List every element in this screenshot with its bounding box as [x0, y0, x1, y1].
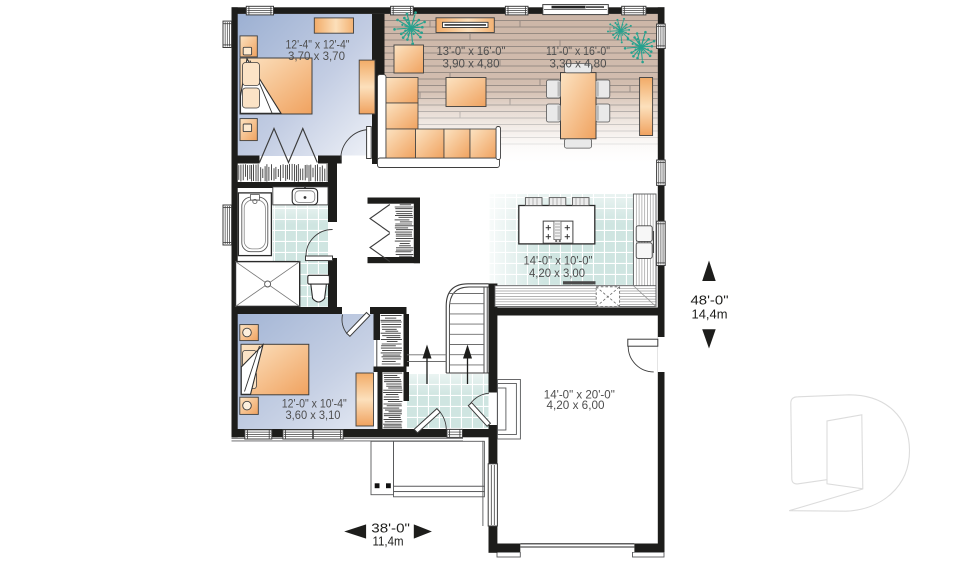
svg-text:4,20 x 3,00: 4,20 x 3,00	[529, 266, 585, 280]
svg-text:11,4m: 11,4m	[373, 533, 404, 548]
svg-text:48'-0": 48'-0"	[691, 292, 729, 307]
svg-text:3,60 x 3,10: 3,60 x 3,10	[286, 408, 341, 422]
svg-text:3,30 x 4,80: 3,30 x 4,80	[550, 56, 607, 70]
svg-text:3,70 x 3,70: 3,70 x 3,70	[288, 49, 345, 63]
svg-text:14,4m: 14,4m	[692, 307, 728, 322]
svg-text:4,20 x 6,00: 4,20 x 6,00	[547, 398, 605, 412]
svg-text:3,90 x 4,80: 3,90 x 4,80	[443, 56, 500, 70]
